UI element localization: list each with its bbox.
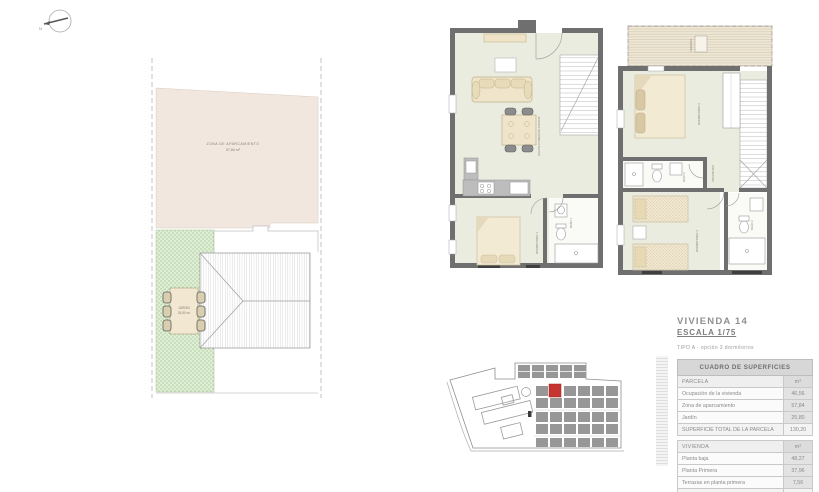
row-label: Zona de aparcamiento — [678, 400, 784, 412]
sofa — [472, 77, 532, 102]
type-subtitle: TIPO A - opción 3 dormitorios — [677, 345, 815, 351]
row-value: 25,80 — [784, 412, 813, 424]
table-row: Ocupación de la vivienda 46,56 — [678, 388, 813, 400]
bedroom1-label: DORMITORIO 1 — [535, 232, 539, 254]
garden-area: 25,80 m² — [178, 311, 191, 315]
surfaces-table: CUADRO DE SUPERFICIES PARCELA m² Ocupaci… — [677, 359, 813, 492]
north-arrow-icon: N — [30, 4, 82, 42]
terrace-label: TERRAZA — [689, 39, 693, 52]
section-unit: m² — [784, 376, 813, 388]
map-house-band-c — [536, 438, 618, 447]
threshold-mark — [478, 265, 500, 268]
threshold-mark — [732, 271, 762, 274]
threshold-mark — [642, 271, 662, 274]
parking-zone-label: ZONA DE APARCAMIENTO — [207, 142, 260, 146]
bed-double — [477, 217, 520, 265]
staircase-upper — [740, 80, 767, 188]
row-label: Planta baja — [678, 453, 784, 465]
scale-label: ESCALA 1/75 — [677, 328, 815, 337]
row-label: Jardín — [678, 412, 784, 424]
title-block: VIVIENDA 14 ESCALA 1/75 TIPO A - opción … — [677, 316, 815, 492]
terrace-table — [695, 36, 707, 52]
total-label: SUPERFICIE TOTAL DE LA PARCELA — [678, 424, 784, 436]
row-label: Ocupación de la vivienda — [678, 388, 784, 400]
terrace: TERRAZA — [628, 26, 772, 66]
table-row: Jardín 25,80 — [678, 412, 813, 424]
ground-floor-plan: SALÓN-COMEDOR-COCINA DORMITORIO 1 BAÑO 1 — [448, 16, 608, 276]
map-marker — [528, 411, 532, 417]
table-row: Planta Primera 37,96 — [678, 465, 813, 477]
nightstand — [633, 226, 646, 239]
parking-zone — [156, 88, 318, 228]
living-room-label: SALÓN-COMEDOR-COCINA — [536, 116, 541, 156]
map-house-row-top — [518, 365, 586, 378]
coffee-table — [495, 58, 516, 72]
roundabout — [522, 388, 531, 397]
total-value: 92,41 — [784, 489, 813, 492]
staircase — [560, 55, 600, 135]
map-highlighted-unit-14 — [549, 384, 561, 397]
roof-plan — [200, 253, 310, 348]
garden-label: JARDÍN — [178, 306, 190, 310]
total-value: 130,20 — [784, 424, 813, 436]
section-unit: m² — [784, 441, 813, 453]
table-total-parcela: SUPERFICIE TOTAL DE LA PARCELA 130,20 — [678, 424, 813, 436]
surfaces-table-header: CUADRO DE SUPERFICIES — [678, 360, 813, 376]
first-floor-plan: TERRAZA — [612, 20, 777, 282]
wardrobe — [723, 73, 740, 128]
map-house-band-a — [536, 386, 618, 408]
row-value: 37,96 — [784, 465, 813, 477]
section-name: VIVIENDA — [678, 441, 784, 453]
row-value: 46,56 — [784, 388, 813, 400]
sideboard — [484, 34, 526, 42]
table-row: Terrazas en planta primera 7,56 — [678, 477, 813, 489]
map-house-band-b — [536, 412, 618, 434]
hall-label: DISTRIBUIDOR — [712, 165, 715, 182]
bed-single-a — [633, 196, 688, 222]
dwelling-title: VIVIENDA 14 — [677, 316, 815, 327]
section-name: PARCELA — [678, 376, 784, 388]
table-section-vivienda: VIVIENDA m² — [678, 441, 813, 453]
terrace-door-opening — [648, 66, 664, 71]
site-plan-drawing: ZONA DE APARCAMIENTO 57,84 m² JA — [140, 52, 325, 402]
table-total-vivienda: SUPERFICIE TOTAL DE LA VIVIENDA 92,41 — [678, 489, 813, 492]
house-footprint-outline — [214, 226, 318, 252]
bed-double-2 — [635, 75, 685, 138]
garden-table: JARDÍN 25,80 m² — [163, 288, 205, 334]
site-location-map — [438, 348, 670, 488]
map-edge-hatch — [656, 356, 668, 466]
table-row: Planta baja 48,27 — [678, 453, 813, 465]
row-label: Planta Primera — [678, 465, 784, 477]
bedroom2-label: DORMITORIO 2 — [697, 103, 701, 125]
hall-floor — [703, 157, 740, 192]
row-value: 7,56 — [784, 477, 813, 489]
parking-zone-area: 57,84 m² — [226, 148, 241, 152]
plan-sheet: N ZONA DE APARCAMIENTO 57,84 m² — [0, 0, 819, 492]
row-value: 48,27 — [784, 453, 813, 465]
row-label: Terrazas en planta primera — [678, 477, 784, 489]
threshold-mark — [526, 265, 540, 268]
neighbor-buildings — [472, 384, 537, 444]
row-value: 57,84 — [784, 400, 813, 412]
bed-single-b — [633, 244, 688, 270]
table-section-parcela: PARCELA m² — [678, 376, 813, 388]
compass-label: N — [39, 26, 42, 31]
table-row: Zona de aparcamiento 57,84 — [678, 400, 813, 412]
bedroom3-label: DORMITORIO 3 — [695, 230, 699, 252]
total-label: SUPERFICIE TOTAL DE LA VIVIENDA — [678, 489, 784, 492]
